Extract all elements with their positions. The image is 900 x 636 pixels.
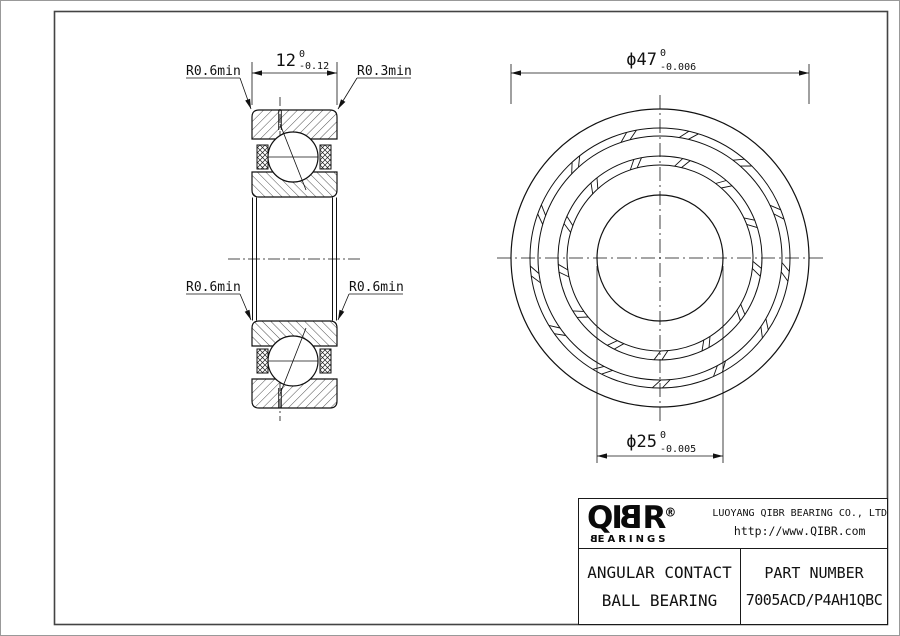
part-number-label: PART NUMBER [741,564,887,582]
title-block: QIBR® BEARINGS LUOYANG QIBR BEARING CO.,… [578,498,888,625]
cage-top-left [257,145,268,169]
label-bottom-right: R0.6min [349,280,404,295]
company-info: LUOYANG QIBR BEARING CO., LTD http://www… [712,505,887,542]
cage-bottom-left [257,349,268,373]
title-block-detail-row: ANGULAR CONTACT BALL BEARING PART NUMBER… [579,549,887,624]
bore-dim-value: ϕ25 [626,432,657,452]
od-dim-value: ϕ47 [626,50,657,70]
cage-top-right [320,145,331,169]
registered-mark-icon: ® [664,505,676,519]
company-website[interactable]: http://www.QIBR.com [712,522,887,542]
product-type-line1: ANGULAR CONTACT [579,563,740,582]
width-dim-value: 12 [276,51,296,71]
front-view [497,95,823,425]
part-number-value: 7005ACD/P4AH1QBC [741,591,887,609]
od-dim-tol-lower: -0.006 [660,62,696,73]
bore-dim-tol-upper: 0 [660,430,666,441]
od-dim-tol-upper: 0 [660,48,666,59]
logo-wordmark: QIBR® [587,503,712,534]
product-type-line2: BALL BEARING [579,591,740,610]
front-center-lines [497,95,823,425]
width-dim-tol-upper: 0 [299,49,305,60]
label-top-right: R0.3min [357,64,412,79]
cage-bottom-right [320,349,331,373]
logo-subtitle: BEARINGS [587,535,712,545]
product-type-cell: ANGULAR CONTACT BALL BEARING [579,549,741,624]
width-dim-tol-lower: -0.12 [299,61,329,72]
bore-dim-tol-lower: -0.005 [660,444,696,455]
bearing-drawing-sheet: 12 0 -0.12 R0.6min R0.3min R0.6min R0.6m… [0,0,900,636]
title-block-header-row: QIBR® BEARINGS LUOYANG QIBR BEARING CO.,… [579,499,887,549]
label-bottom-left: R0.6min [186,280,241,295]
part-number-cell: PART NUMBER 7005ACD/P4AH1QBC [741,549,887,624]
company-logo: QIBR® BEARINGS [579,503,712,545]
company-name: LUOYANG QIBR BEARING CO., LTD [712,505,887,522]
section-view [228,97,360,421]
label-top-left: R0.6min [186,64,241,79]
